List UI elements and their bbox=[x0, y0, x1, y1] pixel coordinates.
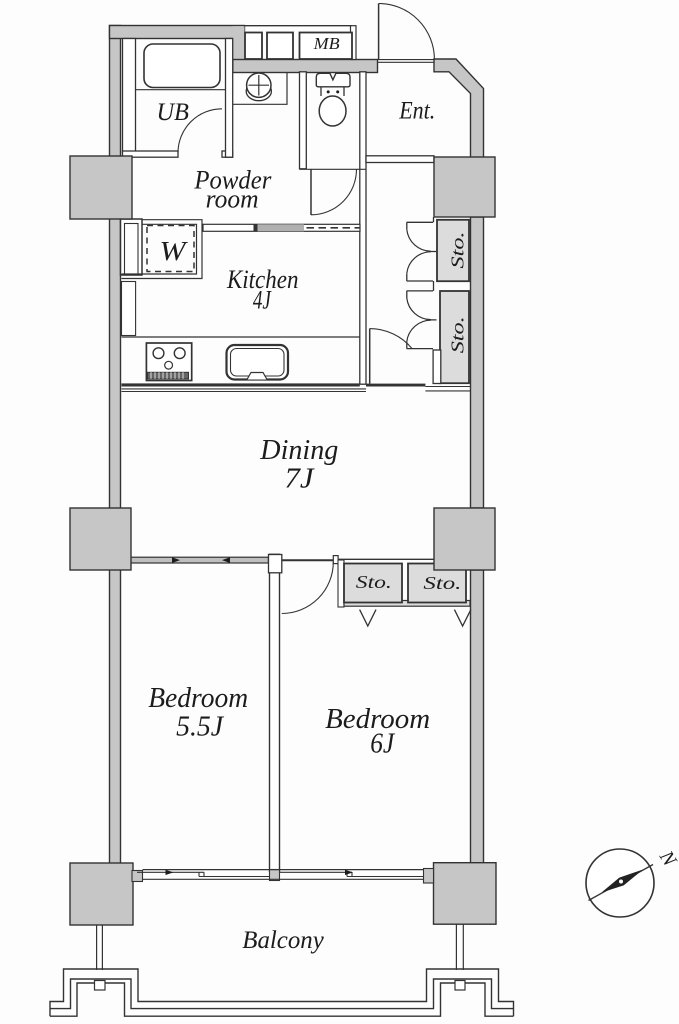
svg-text:Sto.: Sto. bbox=[423, 573, 461, 593]
svg-text:Bedroom: Bedroom bbox=[148, 682, 248, 714]
svg-text:UB: UB bbox=[156, 99, 189, 126]
svg-text:N: N bbox=[654, 846, 679, 871]
svg-text:room: room bbox=[206, 185, 259, 214]
svg-text:Sto.: Sto. bbox=[448, 316, 468, 353]
svg-text:Balcony: Balcony bbox=[242, 927, 324, 954]
svg-text:MB: MB bbox=[313, 34, 341, 53]
svg-text:4J: 4J bbox=[253, 286, 272, 315]
svg-text:5.5J: 5.5J bbox=[176, 711, 224, 743]
svg-text:W: W bbox=[160, 236, 189, 266]
svg-text:Sto.: Sto. bbox=[448, 232, 468, 269]
svg-text:Sto.: Sto. bbox=[356, 572, 392, 592]
svg-text:Ent.: Ent. bbox=[398, 97, 435, 124]
svg-text:7J: 7J bbox=[285, 463, 315, 495]
svg-text:Dining: Dining bbox=[259, 434, 338, 466]
svg-text:6J: 6J bbox=[370, 728, 395, 760]
